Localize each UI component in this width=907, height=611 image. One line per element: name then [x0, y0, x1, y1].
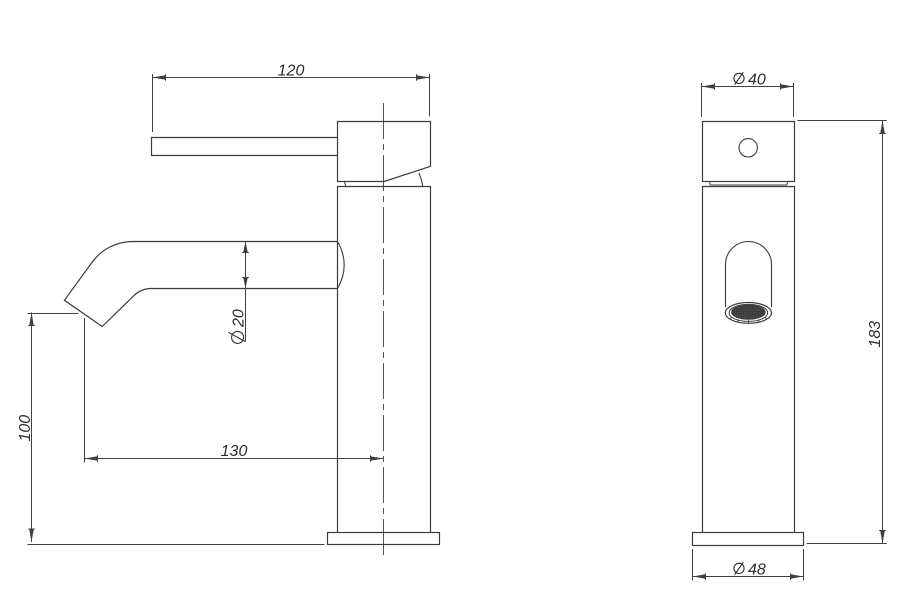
svg-text:130: 130: [221, 443, 248, 460]
svg-text:20: 20: [231, 309, 248, 328]
svg-text:183: 183: [867, 321, 884, 348]
svg-text:48: 48: [748, 562, 766, 579]
svg-text:120: 120: [278, 62, 305, 79]
svg-text:40: 40: [748, 72, 766, 89]
svg-text:100: 100: [17, 415, 34, 442]
